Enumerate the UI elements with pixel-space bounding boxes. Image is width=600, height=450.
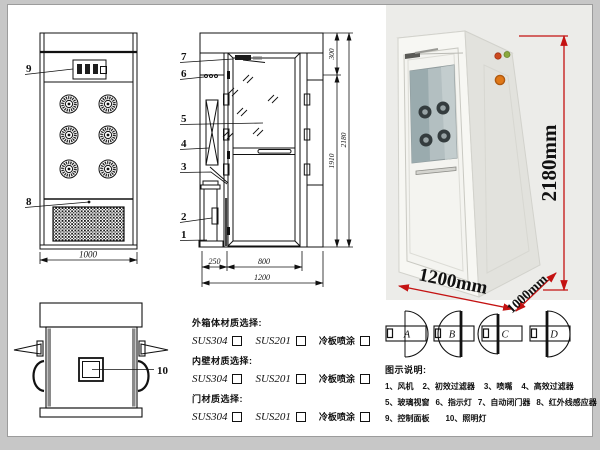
legend-row-2: 5、玻璃视窗 6、指示灯 7、自动闭门器 8、红外线感应器 xyxy=(385,397,597,408)
material-selection: 外箱体材质选择: SUS304 SUS201 冷板喷涂 内壁材质选择: SUS3… xyxy=(192,316,377,430)
checkbox-door-coldplate[interactable] xyxy=(360,412,370,422)
checkbox-inner-coldplate[interactable] xyxy=(360,374,370,384)
material-options-door: SUS304 SUS201 冷板喷涂 xyxy=(192,410,377,423)
nozzles-front xyxy=(60,95,117,178)
door-option-c-label: C xyxy=(501,330,509,341)
air-return-grille xyxy=(53,207,124,241)
legend-item: 7、自动闭门器 xyxy=(478,397,530,408)
checkbox-inner-sus201[interactable] xyxy=(296,374,306,384)
callout-3: 3 xyxy=(181,161,187,173)
option-coldplate: 冷板喷涂 xyxy=(319,334,355,347)
legend-item: 5、玻璃视窗 xyxy=(385,397,429,408)
door-option-b[interactable]: B xyxy=(432,302,478,366)
legend-title: 图示说明: xyxy=(385,363,597,376)
front-view-drawing: 9 8 1000 xyxy=(20,12,170,284)
dim-1200: 1200 xyxy=(254,273,270,282)
legend-row-3: 9、控制面板 10、照明灯 xyxy=(385,413,597,424)
dim-2180: 2180 xyxy=(339,132,348,147)
option-sus304: SUS304 xyxy=(192,335,227,347)
checkbox-door-sus304[interactable] xyxy=(232,412,242,422)
option-sus304: SUS304 xyxy=(192,411,227,423)
door-option-a[interactable]: A xyxy=(384,302,430,366)
callout-10: 10 xyxy=(157,365,169,377)
material-group-label-outer: 外箱体材质选择: xyxy=(192,316,377,329)
photo-dim-height: 2180mm xyxy=(537,124,561,201)
material-group-label-inner: 内壁材质选择: xyxy=(192,354,377,367)
callout-6: 6 xyxy=(181,68,187,80)
callout-4: 4 xyxy=(181,138,187,150)
product-photo: 2180mm 1200mm 1000mm xyxy=(383,3,600,315)
checkbox-outer-sus304[interactable] xyxy=(232,336,242,346)
option-sus201: SUS201 xyxy=(255,335,290,347)
legend-item: 4、高效过滤器 xyxy=(521,381,573,392)
callout-1: 1 xyxy=(181,229,187,241)
material-group-label-door: 门材质选择: xyxy=(192,392,377,405)
control-panel-knobs xyxy=(77,64,107,74)
checkbox-outer-sus201[interactable] xyxy=(296,336,306,346)
door-option-d[interactable]: D xyxy=(528,302,574,366)
callout-5: 5 xyxy=(181,113,187,125)
callout-8: 8 xyxy=(26,196,32,208)
top-view-drawing: 10 xyxy=(8,293,193,445)
checkbox-inner-sus304[interactable] xyxy=(232,374,242,384)
legend-item: 9、控制面板 xyxy=(385,413,429,424)
door-option-d-label: D xyxy=(549,330,558,341)
legend-row-1: 1、风机 2、初效过滤器 3、喷嘴 4、高效过滤器 xyxy=(385,381,597,392)
red-indicator-light xyxy=(495,53,501,59)
option-sus201: SUS201 xyxy=(255,411,290,423)
legend-item: 10、照明灯 xyxy=(445,413,486,424)
legend-item: 3、喷嘴 xyxy=(484,381,512,392)
glass-hatching xyxy=(223,75,278,139)
legend-item: 8、红外线感应器 xyxy=(536,397,596,408)
material-options-outer: SUS304 SUS201 冷板喷涂 xyxy=(192,334,377,347)
material-options-inner: SUS304 SUS201 冷板喷涂 xyxy=(192,372,377,385)
legend-item: 6、指示灯 xyxy=(435,397,471,408)
dim-300: 300 xyxy=(327,48,336,61)
left-handle xyxy=(34,361,45,391)
option-sus304: SUS304 xyxy=(192,373,227,385)
green-indicator-light xyxy=(504,52,510,58)
legend: 图示说明: 1、风机 2、初效过滤器 3、喷嘴 4、高效过滤器 5、玻璃视窗 6… xyxy=(385,363,597,429)
legend-item: 1、风机 xyxy=(385,381,413,392)
dim-1910: 1910 xyxy=(327,153,336,168)
dim-800: 800 xyxy=(258,257,270,266)
callout-2: 2 xyxy=(181,211,187,223)
legend-item: 2、初效过滤器 xyxy=(422,381,474,392)
checkbox-outer-coldplate[interactable] xyxy=(360,336,370,346)
callout-7: 7 xyxy=(181,51,187,63)
door-closer xyxy=(235,55,265,63)
checkbox-door-sus201[interactable] xyxy=(296,412,306,422)
callout-9: 9 xyxy=(26,63,32,75)
door-option-c[interactable]: C xyxy=(480,302,526,366)
door-option-a-label: A xyxy=(403,330,411,341)
option-sus201: SUS201 xyxy=(255,373,290,385)
side-view-drawing: 7 6 5 4 3 2 1 300 1910 2180 250 800 1 xyxy=(175,3,385,295)
right-handle xyxy=(138,361,149,391)
front-width-dim: 1000 xyxy=(79,250,98,260)
option-coldplate: 冷板喷涂 xyxy=(319,372,355,385)
emergency-button[interactable] xyxy=(495,75,504,84)
fan-column xyxy=(204,189,217,241)
option-coldplate: 冷板喷涂 xyxy=(319,410,355,423)
door-option-b-label: B xyxy=(449,330,456,341)
dim-250: 250 xyxy=(209,257,221,266)
door-handle xyxy=(258,150,291,154)
